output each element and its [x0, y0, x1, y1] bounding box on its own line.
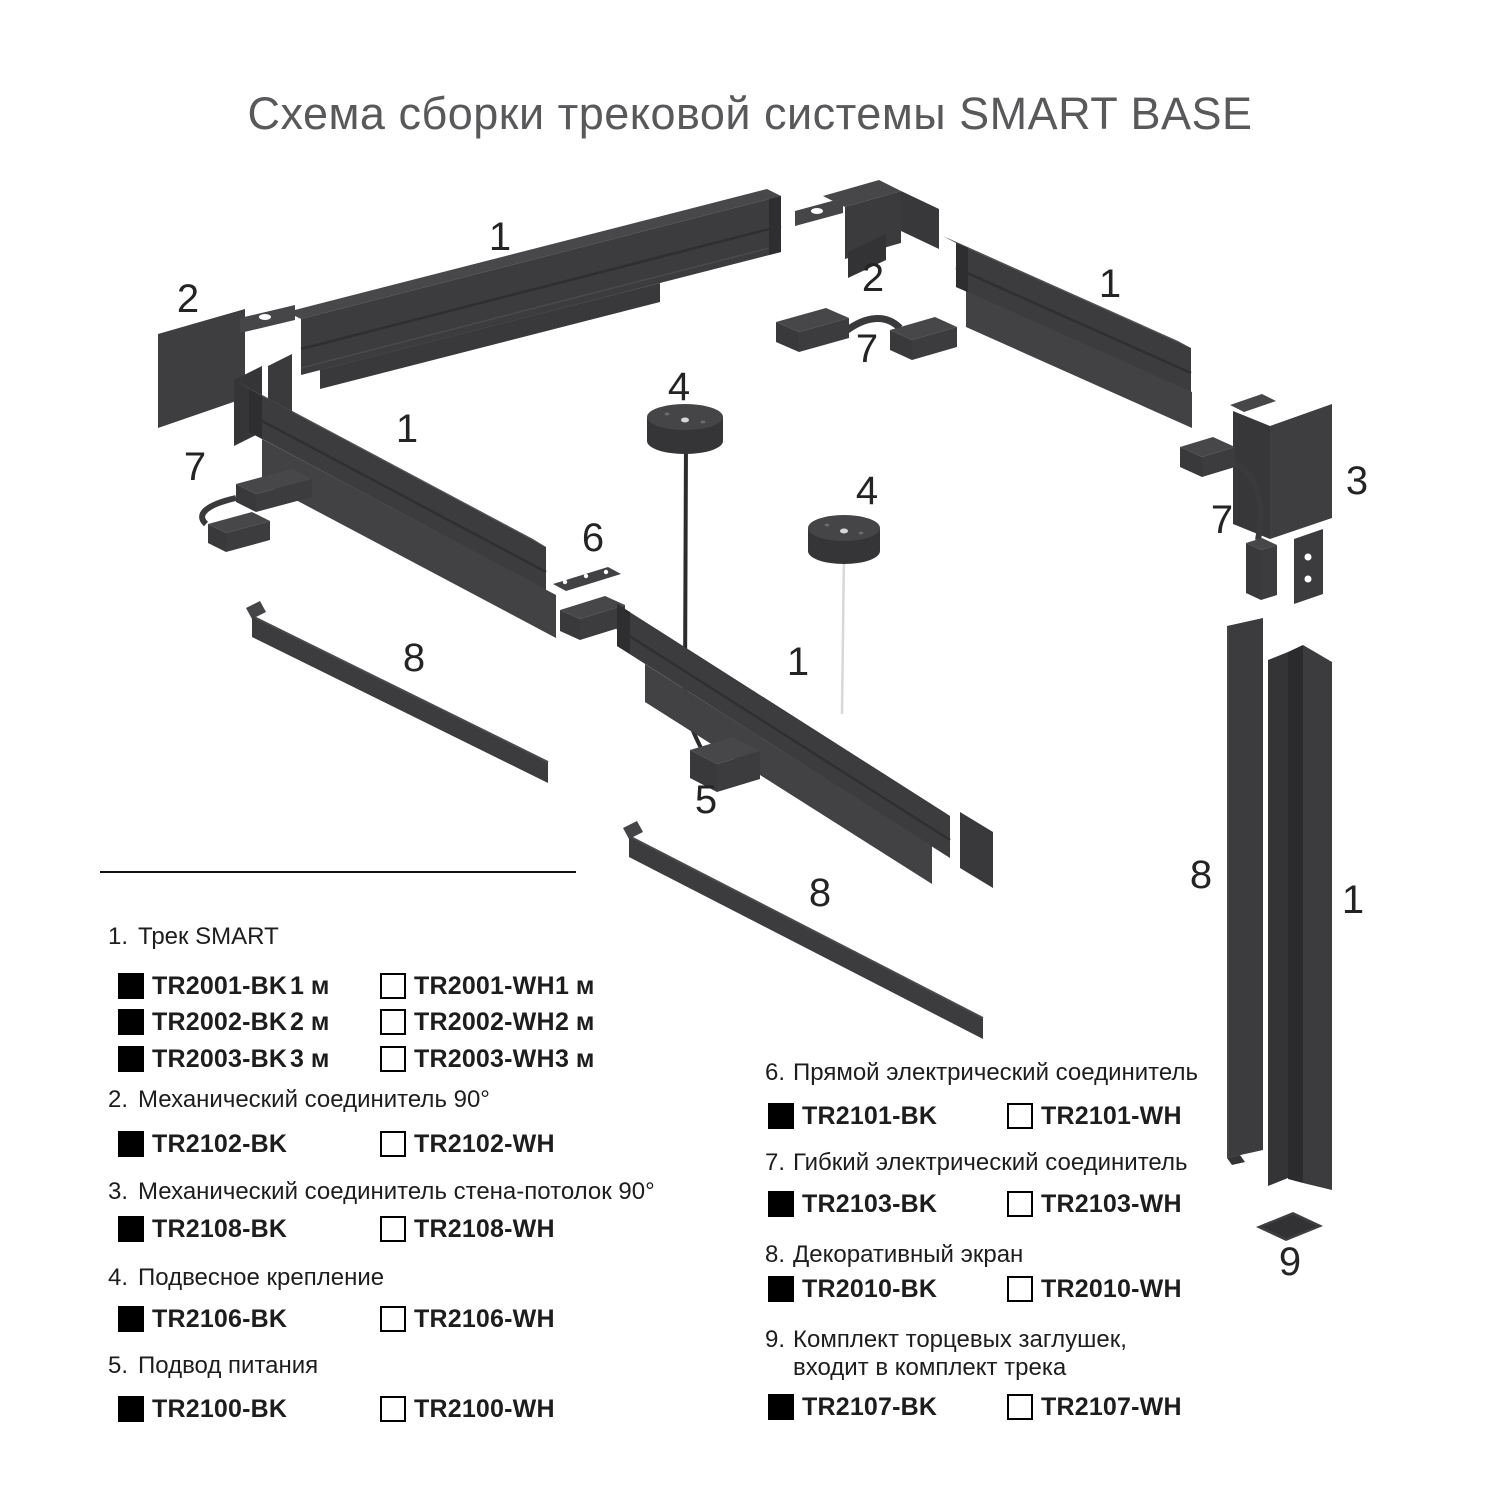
suspension-mount-2	[808, 515, 880, 564]
color-swatch-white	[1007, 1191, 1033, 1217]
code-tr2003-wh: TR2003-WH	[414, 1045, 555, 1073]
code-tr2103-wh: TR2103-WH	[1041, 1190, 1182, 1218]
color-swatch-white	[380, 1009, 406, 1035]
code-tr2002-wh: TR2002-WH	[414, 1008, 555, 1036]
legend-row: TR2102-BK TR2102-WH	[100, 1130, 600, 1158]
flex-connector-left	[202, 469, 312, 552]
legend-row: TR2108-BK TR2108-WH	[100, 1215, 600, 1243]
callout-track-1d: 1	[787, 642, 809, 682]
legend-item-3-number: 3.	[108, 1177, 138, 1207]
legend-item-8-header: 8.Декоративный экран	[765, 1240, 1023, 1270]
callout-screen-bottom: 8	[809, 873, 831, 913]
color-swatch-black	[118, 1131, 144, 1157]
track-segment-top-right	[943, 236, 1192, 428]
color-swatch-black	[118, 1216, 144, 1242]
code-tr2001-bk: TR2001-BK	[152, 972, 287, 1000]
color-swatch-black	[768, 1276, 794, 1302]
legend-item-1-title: Трек SMART	[138, 923, 279, 950]
color-swatch-white	[380, 1131, 406, 1157]
callout-screen-left: 8	[403, 638, 425, 678]
code-tr2002-bk: TR2002-BK	[152, 1008, 287, 1036]
legend-row: TR2003-BK 3 м TR2003-WH 3 м	[100, 1045, 600, 1073]
legend-item-9-title: Комплект торцевых заглушек,	[793, 1326, 1127, 1353]
code-tr2001-wh: TR2001-WH	[414, 972, 555, 1000]
legend-item-2-header: 2.Механический соединитель 90°	[108, 1085, 490, 1115]
legend-row: TR2106-BK TR2106-WH	[100, 1305, 600, 1333]
track-segment-vertical	[1268, 645, 1332, 1190]
legend-item-7-number: 7.	[765, 1148, 793, 1178]
code-tr2102-wh: TR2102-WH	[414, 1130, 555, 1158]
callout-power-feed: 5	[695, 780, 717, 820]
length-label: 1 м	[555, 972, 594, 1000]
callout-corner-left: 2	[177, 279, 199, 319]
callout-track-1c: 1	[396, 409, 418, 449]
callout-mount-2: 4	[856, 471, 878, 511]
decorative-screen-vertical	[1227, 618, 1263, 1165]
legend-item-7-title: Гибкий электрический соединитель	[793, 1149, 1188, 1176]
color-swatch-white	[1007, 1276, 1033, 1302]
callout-wall-ceiling: 3	[1346, 461, 1368, 501]
color-swatch-black	[118, 1396, 144, 1422]
callout-track-1b: 1	[1099, 264, 1121, 304]
callout-end-cap: 9	[1279, 1242, 1301, 1282]
code-tr2106-wh: TR2106-WH	[414, 1305, 555, 1333]
color-swatch-white	[380, 1396, 406, 1422]
color-swatch-black	[768, 1394, 794, 1420]
legend-item-4-title: Подвесное крепление	[138, 1264, 384, 1291]
color-swatch-black	[768, 1103, 794, 1129]
legend-row: TR2100-BK TR2100-WH	[100, 1395, 600, 1423]
callout-flex-top: 7	[856, 329, 878, 369]
color-swatch-white	[380, 1216, 406, 1242]
code-tr2106-bk: TR2106-BK	[152, 1305, 287, 1333]
legend-item-8-number: 8.	[765, 1240, 793, 1270]
legend-item-9-header: 9.Комплект торцевых заглушек,	[765, 1325, 1127, 1355]
code-tr2101-wh: TR2101-WH	[1041, 1102, 1182, 1130]
legend-row: TR2002-BK 2 м TR2002-WH 2 м	[100, 1008, 600, 1036]
straight-connector	[553, 567, 625, 640]
length-label: 3 м	[555, 1045, 594, 1073]
callout-straight-connector: 6	[582, 518, 604, 558]
length-label: 3 м	[290, 1045, 329, 1073]
code-tr2010-bk: TR2010-BK	[802, 1275, 937, 1303]
decorative-screen-left	[246, 601, 548, 783]
legend-item-5-title: Подвод питания	[138, 1352, 318, 1379]
callout-track-1a: 1	[489, 217, 511, 257]
legend-item-2-title: Механический соединитель 90°	[138, 1086, 490, 1113]
legend-item-7-header: 7.Гибкий электрический соединитель	[765, 1148, 1188, 1178]
suspension-mount-1	[647, 404, 723, 454]
color-swatch-white	[380, 1046, 406, 1072]
code-tr2010-wh: TR2010-WH	[1041, 1275, 1182, 1303]
color-swatch-black	[118, 1306, 144, 1332]
legend-item-5-header: 5.Подвод питания	[108, 1351, 318, 1381]
callout-track-1e: 1	[1342, 880, 1364, 920]
legend-item-4-header: 4.Подвесное крепление	[108, 1263, 384, 1293]
code-tr2108-wh: TR2108-WH	[414, 1215, 555, 1243]
color-swatch-white	[380, 973, 406, 999]
length-label: 2 м	[555, 1008, 594, 1036]
color-swatch-black	[118, 1046, 144, 1072]
callout-corner-top: 2	[862, 258, 884, 298]
legend-row: TR2101-BK TR2101-WH	[765, 1102, 1245, 1130]
end-cap-plate	[1256, 1212, 1323, 1241]
legend-item-6-number: 6.	[765, 1058, 793, 1088]
legend-row: TR2103-BK TR2103-WH	[765, 1190, 1245, 1218]
code-tr2103-bk: TR2103-BK	[802, 1190, 937, 1218]
legend-item-9-number: 9.	[765, 1325, 793, 1355]
code-tr2100-bk: TR2100-BK	[152, 1395, 287, 1423]
callout-flex-right: 7	[1211, 500, 1233, 540]
legend-item-5-number: 5.	[108, 1351, 138, 1381]
color-swatch-white	[1007, 1103, 1033, 1129]
callout-flex-left: 7	[184, 447, 206, 487]
length-label: 1 м	[290, 972, 329, 1000]
legend-item-2-number: 2.	[108, 1085, 138, 1115]
callout-screen-vertical: 8	[1190, 855, 1212, 895]
assembly-scheme-page: Схема сборки трековой системы SMART BASE	[0, 0, 1500, 1500]
legend-row: TR2001-BK 1 м TR2001-WH 1 м	[100, 972, 600, 1000]
code-tr2107-wh: TR2107-WH	[1041, 1393, 1182, 1421]
color-swatch-white	[1007, 1394, 1033, 1420]
code-tr2107-bk: TR2107-BK	[802, 1393, 937, 1421]
callout-mount-1: 4	[668, 367, 690, 407]
track-segment-top-left	[287, 189, 781, 389]
legend-divider	[100, 871, 576, 873]
legend-item-8-title: Декоративный экран	[793, 1241, 1023, 1268]
legend-item-9-title-line2: входит в комплект трека	[793, 1353, 1066, 1383]
color-swatch-white	[380, 1306, 406, 1332]
legend-item-6-header: 6.Прямой электрический соединитель	[765, 1058, 1198, 1088]
legend-item-3-header: 3.Механический соединитель стена-потолок…	[108, 1177, 655, 1207]
code-tr2101-bk: TR2101-BK	[802, 1102, 937, 1130]
code-tr2102-bk: TR2102-BK	[152, 1130, 287, 1158]
legend-item-6-title: Прямой электрический соединитель	[793, 1059, 1198, 1086]
legend-row: TR2107-BK TR2107-WH	[765, 1393, 1245, 1421]
legend-item-4-number: 4.	[108, 1263, 138, 1293]
suspension-cord-white	[842, 551, 844, 714]
color-swatch-black	[768, 1191, 794, 1217]
color-swatch-black	[118, 1009, 144, 1035]
legend-item-1-number: 1.	[108, 922, 138, 952]
code-tr2100-wh: TR2100-WH	[414, 1395, 555, 1423]
length-label: 2 м	[290, 1008, 329, 1036]
wall-ceiling-connector	[1230, 394, 1332, 604]
code-tr2108-bk: TR2108-BK	[152, 1215, 287, 1243]
legend-item-3-title: Механический соединитель стена-потолок 9…	[138, 1178, 655, 1205]
code-tr2003-bk: TR2003-BK	[152, 1045, 287, 1073]
legend-row: TR2010-BK TR2010-WH	[765, 1275, 1245, 1303]
legend-item-1-header: 1.Трек SMART	[108, 922, 279, 952]
color-swatch-black	[118, 973, 144, 999]
